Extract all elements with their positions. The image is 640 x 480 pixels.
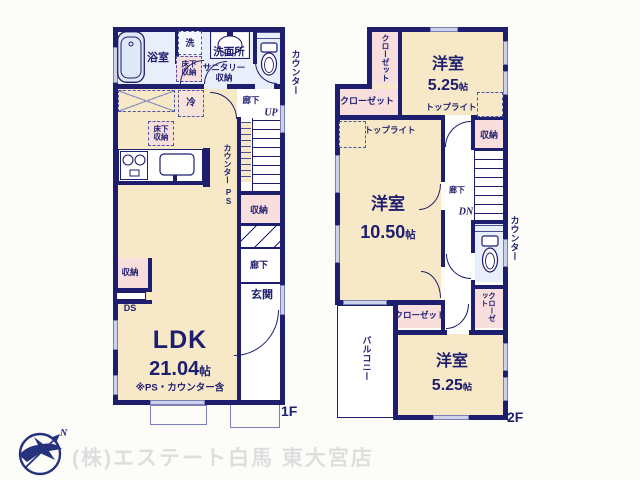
label-closet-top-left: クローゼット [381,34,389,82]
wall [469,330,503,335]
label-closet-bottom-mid: クローゼット [394,311,445,321]
window [433,415,469,420]
window [503,71,508,95]
floor-hatch [118,90,175,112]
wall [237,282,281,284]
label-closet-bottom-right: クローゼット [481,292,496,324]
label-room-top-size: 5.25帖 [428,77,468,95]
floor-2-plan: クローゼット クローゼット 洋室 5.25帖 トップライト トップライト 洋室 … [335,27,508,420]
label-storage-hall: 収納 [250,205,268,215]
stair-rail [474,150,475,220]
label-sanitary-storage: サニタリー 収納 [203,63,246,82]
window [503,239,508,267]
label-hall-lower: 廊下 [250,260,268,270]
shoe-cabinet [237,226,281,247]
room-label-ldk: LDK [153,326,207,354]
window [503,343,508,371]
wall [227,84,255,89]
stair-rail [252,118,253,193]
room-label-bath: 浴室 [147,52,169,64]
label-up: UP [264,107,277,118]
label-ps: PS [224,188,232,206]
wall [471,220,503,224]
wall [237,117,241,404]
window [280,105,285,133]
toilet-icon-2f [480,235,500,275]
ds-duct [116,292,146,300]
label-storage-ldk: 収納 [121,268,138,278]
wall [237,247,281,249]
label-underfloor-storage-ldk: 床下 収納 [154,126,169,143]
window [503,41,508,65]
floor-1-plan: 浴室 洗 洗面所 サニタリー 収納 床下 収納 冷 床下 収納 廊下 UP カウ… [113,27,285,405]
wall [471,120,475,150]
wall [335,84,372,89]
wall [237,223,281,226]
toplight-box-left [339,121,366,148]
label-closet-top-mid: クローゼット [340,96,394,106]
wall [253,30,257,64]
wall [396,330,447,335]
label-balcony: バルコニー [362,336,371,381]
floor-label-2f: 2F [507,409,523,425]
wall [471,285,503,289]
window [430,27,458,32]
wall [274,84,285,89]
wall [473,148,503,150]
room-label-washroom: 洗面所 [213,47,245,59]
wall [441,210,445,267]
toilet-counter-hatch-2f [475,225,503,233]
label-ds: DS [124,303,137,313]
label-toplight-right: トップライト [425,103,476,113]
room-label-top: 洋室 [432,56,464,74]
terrace-step [150,405,207,425]
label-fridge: 冷 [186,99,196,110]
window [335,225,340,263]
label-counter-kitchen: カウンター [223,144,231,184]
stairs-down [475,150,503,220]
label-ldk-note: ※PS・カウンター含 [136,384,224,395]
toilet-counter-hatch [256,32,280,40]
floor-label-1f: 1F [281,403,297,419]
wall [335,115,445,120]
window [343,300,387,305]
label-toplight-left: トップライト [364,126,415,136]
wall [148,258,152,292]
window [280,285,285,315]
floorplan-canvas: 浴室 洗 洗面所 サニタリー 収納 床下 収納 冷 床下 収納 廊下 UP カウ… [0,0,640,480]
window [113,375,118,395]
window [335,155,340,193]
stairs-up [252,120,280,193]
room-label-bottom: 洋室 [436,353,468,371]
toplight-box-right [477,92,503,117]
room-label-entrance: 玄関 [251,289,273,301]
svg-text:N: N [59,428,68,439]
label-counter-outside-2f: カウンター [510,216,519,261]
compass-logo: N [12,426,72,478]
label-counter-outside: カウンター [291,50,300,95]
label-hall-2f: 廊下 [449,187,465,196]
wall [237,191,281,195]
wall [393,305,398,420]
window [503,377,508,401]
label-room-mid-size: 10.50帖 [360,222,415,242]
label-ldk-size: 21.04帖 [149,358,211,380]
wall [367,27,372,89]
label-laundry: 洗 [185,38,194,48]
company-watermark: (株)エステート白馬 東大宮店 [72,442,374,472]
wall [113,84,204,89]
kitchen-end-wall [203,148,210,187]
bathtub-icon [117,31,145,83]
label-underfloor-storage: 床下 収納 [182,61,197,78]
hall-2f [445,120,471,330]
ldk-room [113,89,237,404]
entrance-porch [230,405,280,428]
window [113,320,118,350]
wall [441,120,445,182]
label-storage-2f: 収納 [480,130,498,140]
wall [471,220,475,253]
label-dn: DN [459,206,473,217]
room-label-mid: 洋室 [371,194,405,213]
bedroom-bottom [398,334,503,415]
label-hall-upper: 廊下 [242,96,259,106]
label-room-bottom-size: 5.25帖 [432,377,472,395]
wall [398,32,402,115]
kitchen-counter-icon [118,149,203,185]
